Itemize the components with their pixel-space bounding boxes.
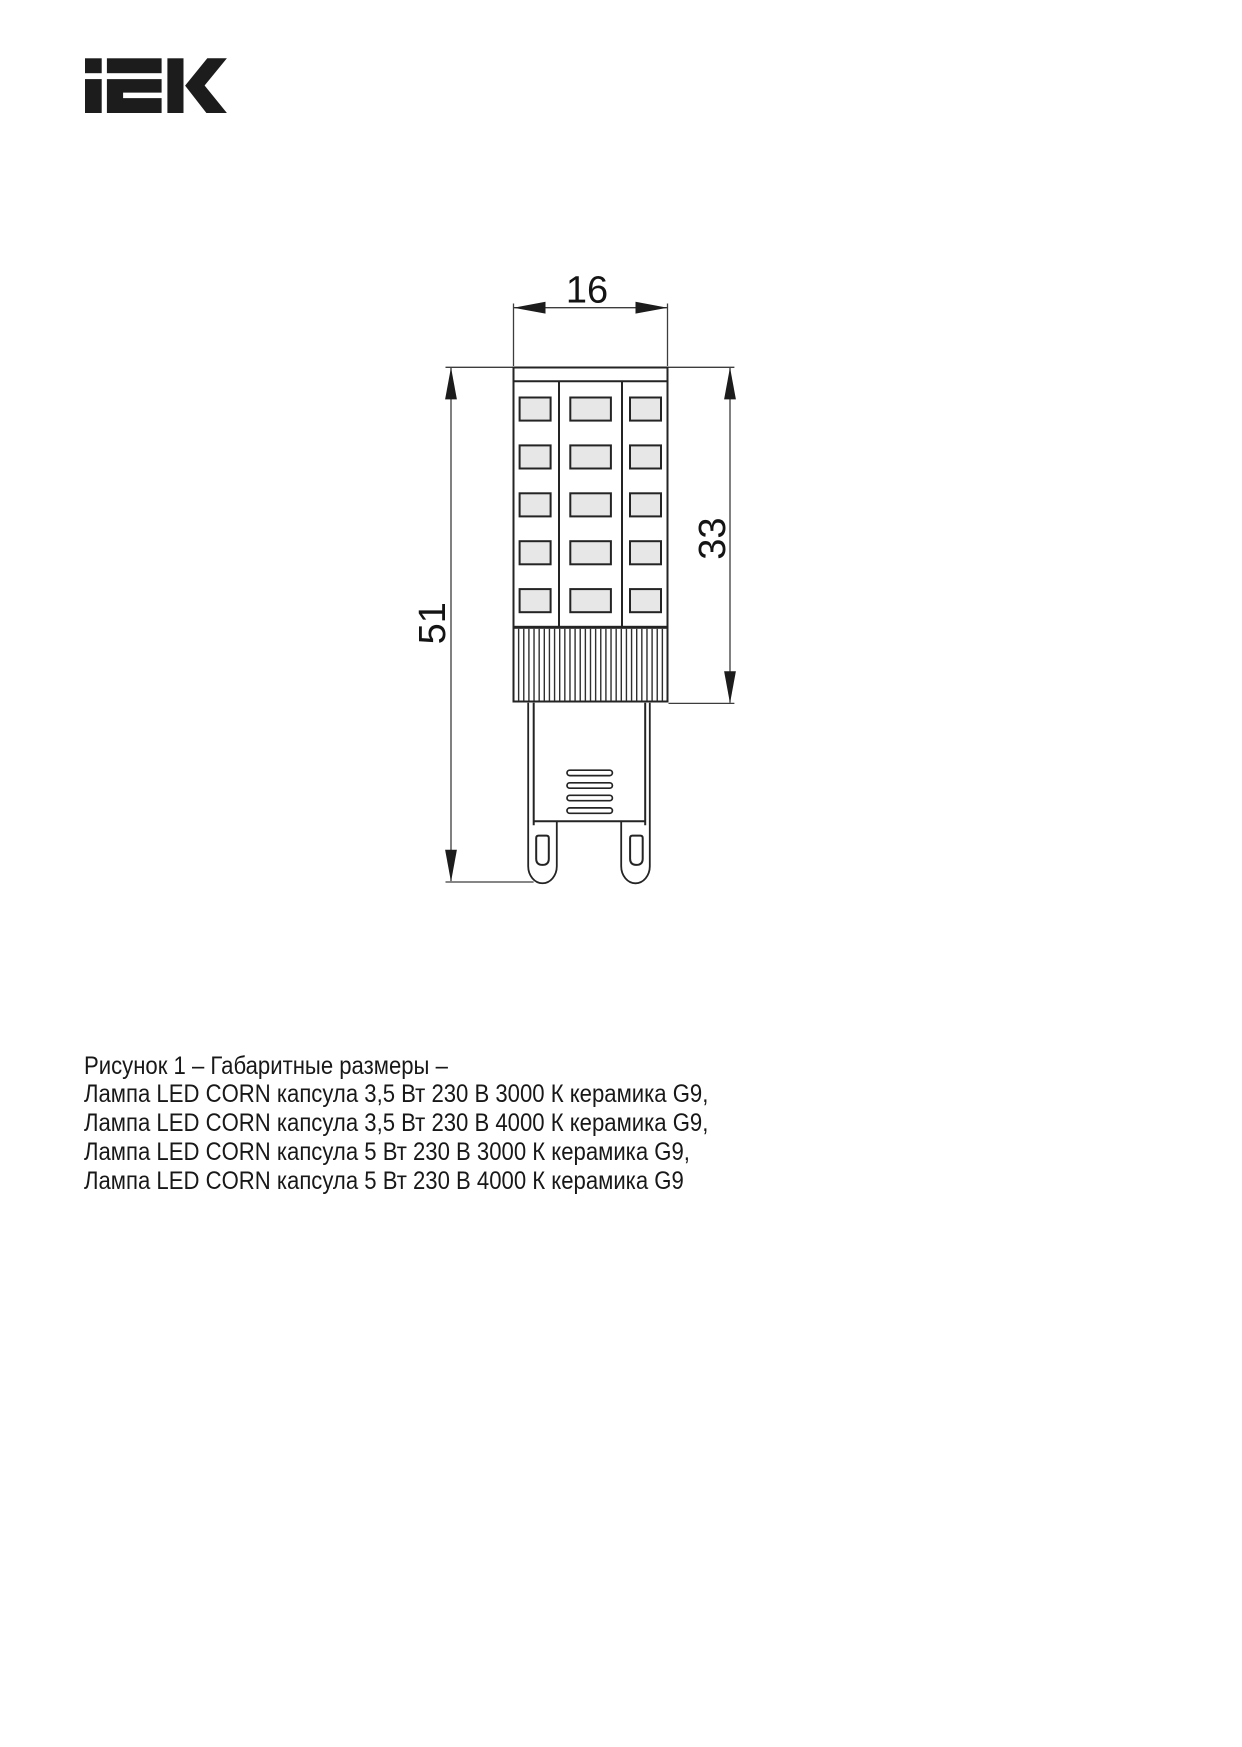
svg-text:33: 33: [692, 517, 734, 559]
svg-text:16: 16: [566, 270, 608, 312]
svg-text:51: 51: [412, 602, 454, 644]
